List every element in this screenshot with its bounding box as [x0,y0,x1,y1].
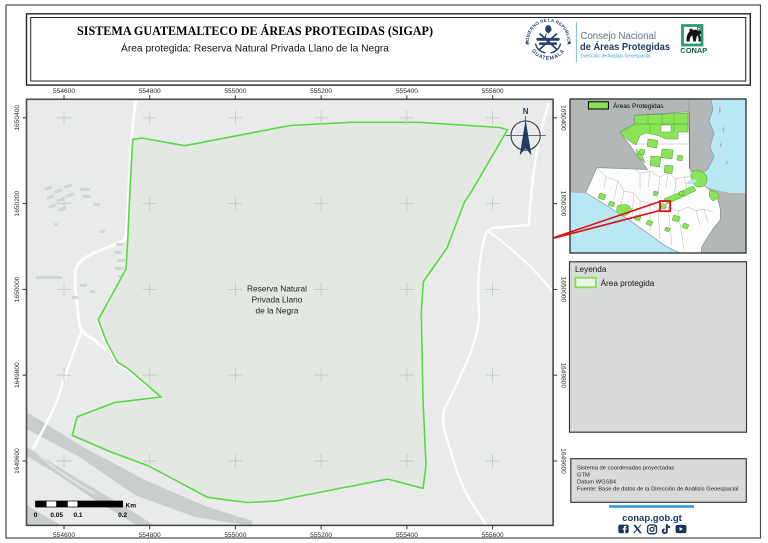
svg-text:555600: 555600 [482,88,504,95]
svg-text:de la Negra: de la Negra [256,305,299,315]
svg-text:N: N [523,107,529,116]
svg-text:554600: 554600 [53,532,75,539]
svg-text:1650400: 1650400 [560,105,567,131]
svg-text:555000: 555000 [224,532,246,539]
svg-text:0.2: 0.2 [118,512,127,519]
svg-text:1649600: 1649600 [14,448,21,474]
svg-text:555200: 555200 [310,88,332,95]
svg-text:Áreas Protegidas: Áreas Protegidas [613,101,664,110]
svg-text:GTM: GTM [577,473,590,479]
svg-text:1650000: 1650000 [560,277,567,303]
svg-text:555400: 555400 [396,532,418,539]
svg-text:0.05: 0.05 [50,512,63,519]
svg-text:Fuente: Base de datos de la Di: Fuente: Base de datos de la Dirección de… [577,487,738,493]
svg-text:de Áreas Protegidas: de Áreas Protegidas [580,40,670,53]
svg-text:555400: 555400 [396,88,418,95]
svg-text:555600: 555600 [482,532,504,539]
svg-text:Km: Km [126,503,137,510]
svg-text:Sistema de coordenadas proyect: Sistema de coordenadas proyectadas [577,466,674,472]
svg-text:0: 0 [34,512,38,519]
svg-text:554800: 554800 [139,88,161,95]
svg-text:Área protegida: Reserva Natura: Área protegida: Reserva Natural Privada … [121,42,389,55]
svg-text:1650400: 1650400 [14,105,21,131]
svg-text:1649600: 1649600 [560,448,567,474]
svg-text:Datum WGS84: Datum WGS84 [577,480,617,486]
svg-text:0.1: 0.1 [73,512,82,519]
svg-text:Reserva Natural: Reserva Natural [247,284,307,294]
svg-text:1649800: 1649800 [14,362,21,388]
svg-text:CONAP: CONAP [680,46,707,55]
svg-text:1650200: 1650200 [560,191,567,217]
svg-text:Privada Llano: Privada Llano [252,294,303,304]
svg-text:SISTEMA GUATEMALTECO DE ÁREAS: SISTEMA GUATEMALTECO DE ÁREAS PROTEGIDAS… [77,24,433,38]
svg-text:Leyenda: Leyenda [575,265,607,274]
svg-text:1650000: 1650000 [14,276,21,302]
svg-text:Área protegida: Área protegida [601,278,655,288]
svg-text:1650200: 1650200 [14,190,21,216]
svg-text:555200: 555200 [310,532,332,539]
svg-text:1649800: 1649800 [560,362,567,388]
svg-text:554600: 554600 [53,88,75,95]
svg-text:554800: 554800 [139,532,161,539]
svg-text:conap.gob.gt: conap.gob.gt [622,513,682,524]
svg-text:555000: 555000 [224,88,246,95]
svg-text:Dirección de Análisis Geoespac: Dirección de Análisis Geoespacial [581,54,651,60]
